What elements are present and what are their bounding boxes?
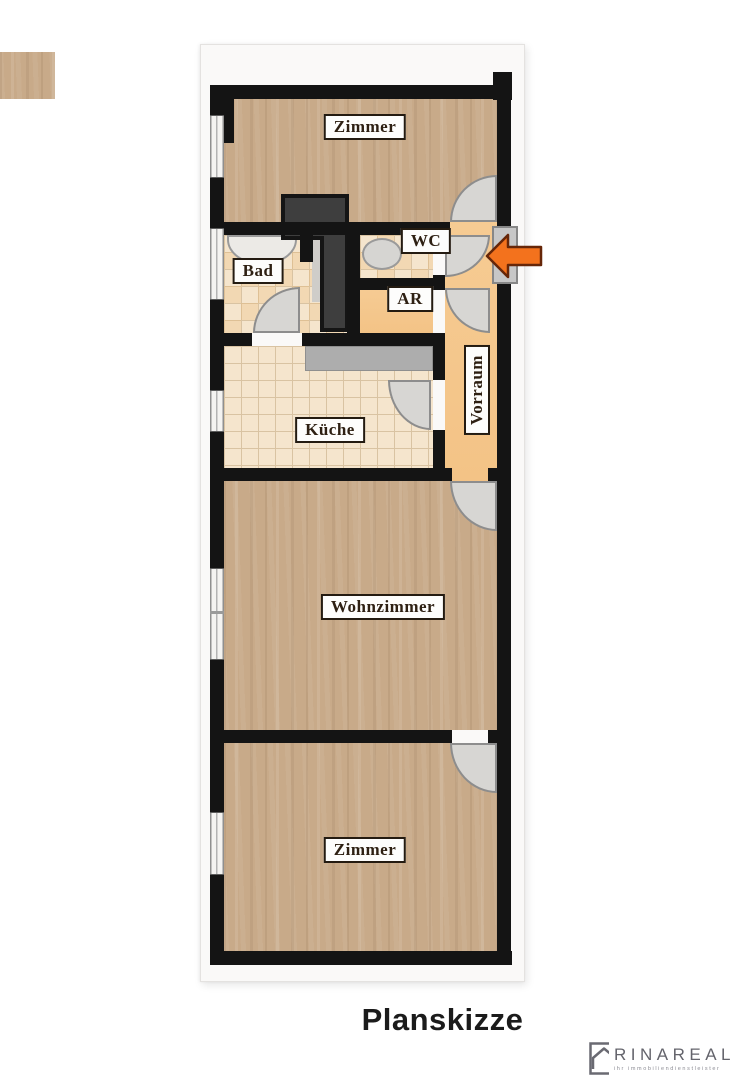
wall-kueche-bottom <box>224 468 452 481</box>
room-label-kueche: Küche <box>295 417 365 443</box>
window-kueche <box>210 390 224 432</box>
window-bad <box>210 228 224 300</box>
logo-tagline: ihr immobiliendienstleister <box>614 1066 735 1072</box>
room-label-ar: AR <box>387 286 433 312</box>
window-wohnzimmer-mullion <box>210 611 224 614</box>
wall-wohnzimmer-bottom-nub <box>488 730 511 743</box>
wall-bottom <box>210 951 512 965</box>
wall-top <box>210 85 512 99</box>
wall-wohnzimmer-bottom <box>224 730 452 743</box>
wall-vorraum-left-a <box>433 275 445 288</box>
wall-bad-bottom-left <box>224 333 252 346</box>
wall-bad-right <box>300 222 313 262</box>
kitchen-counter <box>305 346 433 371</box>
texture-swatch <box>0 52 55 99</box>
room-label-wohnzimmer: Wohnzimmer <box>321 594 445 620</box>
wall-corner-topright <box>493 72 512 100</box>
window-zimmer-bottom <box>210 812 224 875</box>
logo-house-icon <box>588 1040 609 1076</box>
room-label-zimmer-bottom: Zimmer <box>324 837 406 863</box>
room-label-vorraum: Vorraum <box>464 345 490 435</box>
window-wohnzimmer <box>210 568 224 660</box>
wall-right <box>497 85 511 965</box>
room-label-bad: Bad <box>233 258 284 284</box>
floor-plan-page: Zimmer Bad WC AR Küche Vorraum Wohnzimme… <box>0 0 735 1080</box>
wall-kueche-bottom-nub <box>488 468 511 481</box>
wall-vorraum-left-b <box>433 346 445 380</box>
room-label-zimmer-top: Zimmer <box>324 114 406 140</box>
logo-name: RINAREAL <box>614 1046 735 1065</box>
wall-bad-bottom-right <box>302 333 445 346</box>
window-zimmer-top <box>210 115 224 178</box>
logo-rinareal: RINAREAL ihr immobiliendienstleister <box>588 1040 735 1078</box>
toilet <box>362 238 402 270</box>
caption-planskizze: Planskizze <box>305 1002 580 1038</box>
room-label-wc: WC <box>401 228 451 254</box>
entrance-arrow-icon <box>483 230 545 282</box>
logo-text-block: RINAREAL ihr immobiliendienstleister <box>614 1040 735 1072</box>
